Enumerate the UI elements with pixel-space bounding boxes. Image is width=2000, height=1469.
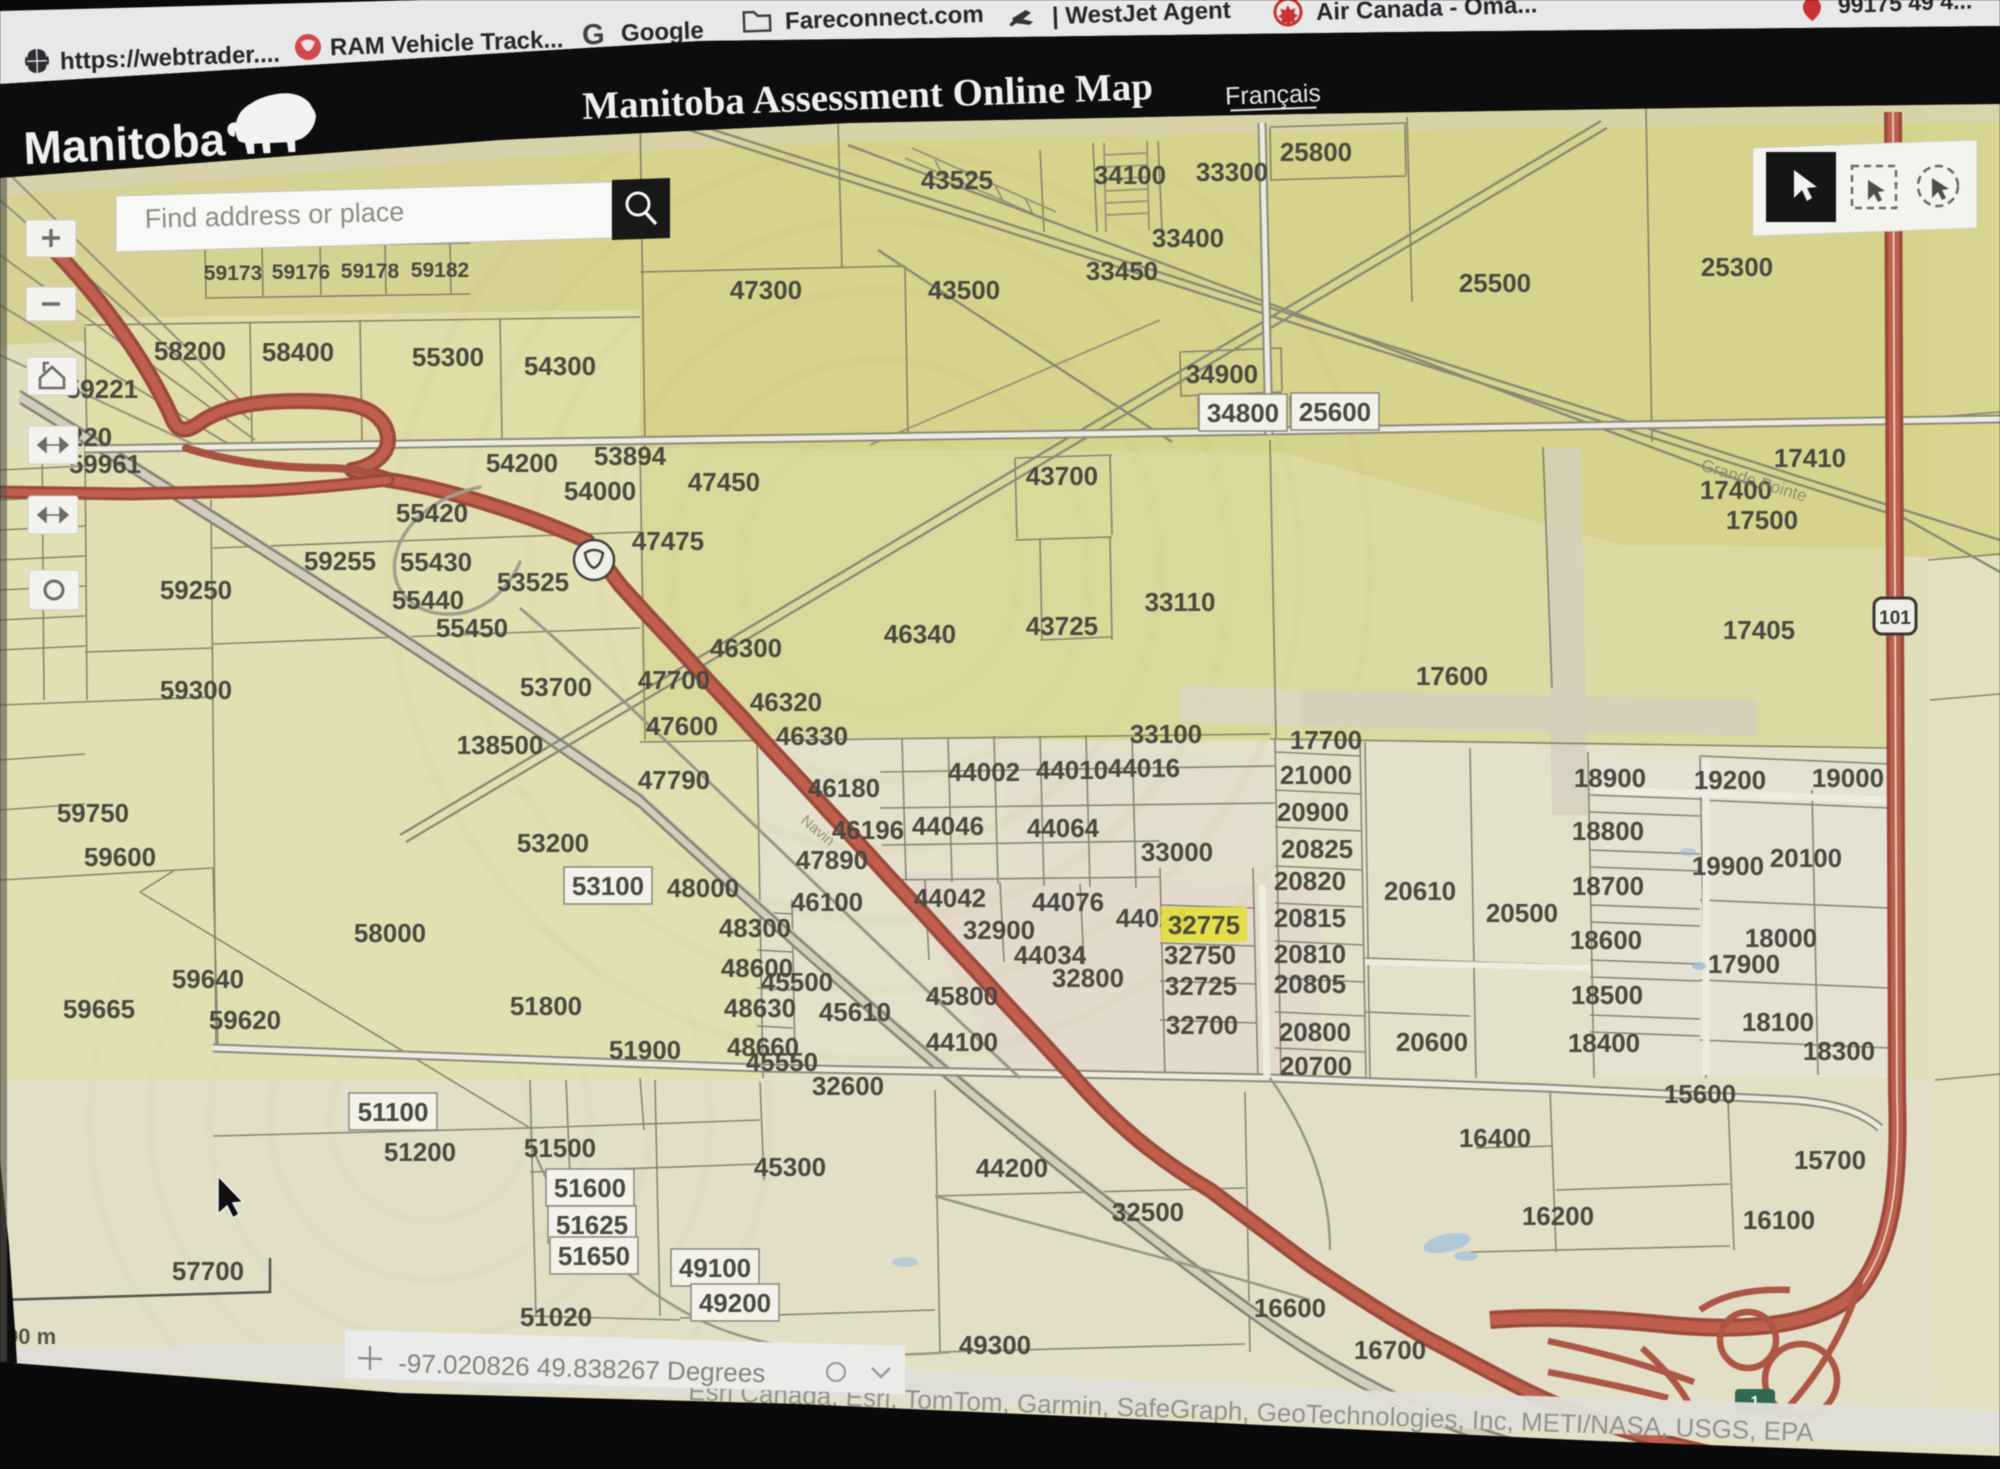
svg-text:59600: 59600 <box>84 842 156 872</box>
svg-text:49300: 49300 <box>959 1330 1031 1360</box>
svg-text:25800: 25800 <box>1280 137 1352 167</box>
svg-text:44016: 44016 <box>1108 753 1180 783</box>
svg-text:20100: 20100 <box>1770 843 1842 873</box>
svg-text:46340: 46340 <box>884 619 956 649</box>
svg-text:43725: 43725 <box>1026 611 1098 641</box>
svg-text:51800: 51800 <box>510 991 582 1021</box>
svg-text:51200: 51200 <box>384 1137 456 1167</box>
svg-text:44100: 44100 <box>926 1027 998 1057</box>
svg-text:59182: 59182 <box>411 259 469 282</box>
svg-text:46100: 46100 <box>791 887 863 917</box>
svg-text:25300: 25300 <box>1701 252 1773 282</box>
svg-text:Manitoba: Manitoba <box>22 113 226 174</box>
svg-text:16200: 16200 <box>1522 1201 1594 1231</box>
svg-text:32750: 32750 <box>1164 940 1236 970</box>
svg-text:54300: 54300 <box>524 351 596 381</box>
svg-text:47700: 47700 <box>638 665 710 695</box>
svg-text:44076: 44076 <box>1032 887 1104 917</box>
svg-text:20825: 20825 <box>1281 834 1353 864</box>
svg-text:20600: 20600 <box>1396 1027 1468 1057</box>
svg-text:18500: 18500 <box>1571 980 1643 1010</box>
svg-text:34100: 34100 <box>1094 160 1166 190</box>
svg-text:55300: 55300 <box>412 342 484 372</box>
svg-text:59173: 59173 <box>204 262 262 285</box>
svg-text:53700: 53700 <box>520 672 592 702</box>
svg-text:53200: 53200 <box>517 828 589 858</box>
svg-text:44046: 44046 <box>912 811 984 841</box>
svg-text:46300: 46300 <box>710 633 782 663</box>
svg-text:18300: 18300 <box>1803 1036 1875 1066</box>
svg-text:32500: 32500 <box>1112 1197 1184 1227</box>
svg-text:55430: 55430 <box>400 547 472 577</box>
svg-text:44064: 44064 <box>1027 813 1100 843</box>
svg-text:32775: 32775 <box>1168 910 1240 940</box>
svg-text:46180: 46180 <box>808 773 880 803</box>
svg-text:17600: 17600 <box>1416 661 1488 691</box>
svg-text:16100: 16100 <box>1743 1205 1815 1235</box>
svg-text:20610: 20610 <box>1384 876 1456 906</box>
svg-text:33450: 33450 <box>1086 256 1158 286</box>
svg-text:33110: 33110 <box>1145 587 1216 617</box>
svg-text:44042: 44042 <box>914 883 986 913</box>
svg-text:Français: Français <box>1225 79 1322 110</box>
svg-text:33100: 33100 <box>1130 719 1202 749</box>
svg-text:18700: 18700 <box>1572 871 1644 901</box>
svg-text:20900: 20900 <box>1277 797 1349 827</box>
svg-text:59665: 59665 <box>63 994 135 1024</box>
svg-text:49200: 49200 <box>699 1288 771 1318</box>
svg-text:17700: 17700 <box>1290 725 1362 755</box>
svg-text:48300: 48300 <box>719 913 791 943</box>
svg-text:32900: 32900 <box>963 915 1035 945</box>
svg-text:51625: 51625 <box>556 1210 628 1240</box>
svg-text:18400: 18400 <box>1568 1028 1640 1058</box>
svg-text:33400: 33400 <box>1152 223 1224 253</box>
svg-text:51650: 51650 <box>558 1241 630 1271</box>
svg-text:19900: 19900 <box>1692 851 1764 881</box>
svg-text:19200: 19200 <box>1694 765 1766 795</box>
svg-text:138500: 138500 <box>457 730 544 760</box>
svg-text:51100: 51100 <box>358 1097 429 1127</box>
svg-text:18800: 18800 <box>1572 816 1644 846</box>
svg-text:59250: 59250 <box>160 575 232 605</box>
svg-text:44200: 44200 <box>976 1153 1048 1183</box>
svg-text:58200: 58200 <box>154 336 226 366</box>
svg-text:43700: 43700 <box>1026 461 1098 491</box>
svg-text:45550: 45550 <box>746 1047 818 1077</box>
svg-text:47890: 47890 <box>796 845 868 875</box>
svg-text:58400: 58400 <box>262 337 334 367</box>
svg-text:21000: 21000 <box>1280 760 1352 790</box>
svg-text:16700: 16700 <box>1354 1335 1426 1365</box>
svg-text:16600: 16600 <box>1254 1293 1326 1323</box>
svg-text:16400: 16400 <box>1459 1123 1531 1153</box>
svg-text:51600: 51600 <box>554 1173 626 1203</box>
svg-text:59750: 59750 <box>57 798 129 828</box>
svg-text:43500: 43500 <box>928 275 1000 305</box>
svg-text:45610: 45610 <box>819 997 891 1027</box>
svg-text:32725: 32725 <box>1165 971 1237 1001</box>
svg-text:47450: 47450 <box>688 467 760 497</box>
svg-text:15700: 15700 <box>1794 1145 1866 1175</box>
svg-text:34800: 34800 <box>1207 398 1279 428</box>
svg-text:54200: 54200 <box>486 448 558 478</box>
svg-text:59300: 59300 <box>160 675 232 705</box>
svg-text:17900: 17900 <box>1708 949 1780 979</box>
svg-text:33300: 33300 <box>1196 157 1268 187</box>
svg-text:51020: 51020 <box>520 1302 592 1332</box>
svg-text:59178: 59178 <box>341 260 400 283</box>
svg-text:18900: 18900 <box>1574 763 1646 793</box>
svg-text:45300: 45300 <box>754 1152 826 1182</box>
svg-text:43525: 43525 <box>921 165 993 195</box>
svg-text:53100: 53100 <box>572 871 644 901</box>
svg-text:G: G <box>582 19 606 52</box>
svg-text:55450: 55450 <box>436 613 508 643</box>
svg-text:58000: 58000 <box>354 918 426 948</box>
svg-text:47790: 47790 <box>638 765 710 795</box>
svg-text:59961: 59961 <box>69 449 141 479</box>
svg-text:20700: 20700 <box>1280 1051 1352 1081</box>
svg-text:17500: 17500 <box>1726 505 1798 535</box>
svg-text:33000: 33000 <box>1141 837 1213 867</box>
svg-text:25500: 25500 <box>1459 268 1531 298</box>
svg-text:20805: 20805 <box>1274 969 1346 999</box>
svg-text:20810: 20810 <box>1274 939 1346 969</box>
svg-text:59640: 59640 <box>172 964 244 994</box>
svg-text:53894: 53894 <box>594 441 667 471</box>
svg-text:45800: 45800 <box>926 981 998 1011</box>
svg-text:59255: 59255 <box>304 546 376 576</box>
svg-text:47475: 47475 <box>632 526 704 556</box>
svg-text:46196: 46196 <box>832 815 904 845</box>
svg-text:54000: 54000 <box>564 476 636 506</box>
svg-text:51500: 51500 <box>524 1133 596 1163</box>
svg-text:15600: 15600 <box>1664 1079 1736 1109</box>
svg-text:47600: 47600 <box>646 711 718 741</box>
svg-text:57700: 57700 <box>172 1256 244 1286</box>
svg-text:20815: 20815 <box>1274 903 1346 933</box>
svg-text:46330: 46330 <box>776 721 848 751</box>
svg-text:20500: 20500 <box>1486 898 1558 928</box>
svg-text:47300: 47300 <box>730 275 802 305</box>
svg-text:55440: 55440 <box>392 585 464 615</box>
svg-text:53525: 53525 <box>497 567 569 597</box>
svg-text:46320: 46320 <box>750 687 822 717</box>
svg-text:44002: 44002 <box>948 757 1020 787</box>
svg-text:32700: 32700 <box>1166 1010 1238 1040</box>
svg-text:20800: 20800 <box>1279 1017 1351 1047</box>
svg-text:32600: 32600 <box>812 1071 884 1101</box>
svg-text:44010: 44010 <box>1036 755 1108 785</box>
svg-text:34900: 34900 <box>1186 359 1258 389</box>
svg-text:48630: 48630 <box>724 993 796 1023</box>
svg-text:19000: 19000 <box>1812 763 1884 793</box>
svg-text:49100: 49100 <box>679 1253 751 1283</box>
svg-text:25600: 25600 <box>1299 397 1371 427</box>
svg-text:20820: 20820 <box>1274 866 1346 896</box>
svg-text:18100: 18100 <box>1742 1007 1814 1037</box>
svg-text:18600: 18600 <box>1570 925 1642 955</box>
svg-text:45500: 45500 <box>761 967 833 997</box>
svg-text:59176: 59176 <box>272 261 330 284</box>
svg-text:32800: 32800 <box>1052 963 1124 993</box>
svg-text:48000: 48000 <box>667 873 739 903</box>
svg-text:17405: 17405 <box>1723 615 1795 645</box>
svg-text:51900: 51900 <box>609 1035 681 1065</box>
svg-text:17410: 17410 <box>1774 443 1846 473</box>
svg-text:101: 101 <box>1879 608 1911 629</box>
svg-text:55420: 55420 <box>396 498 468 528</box>
svg-text:59620: 59620 <box>209 1005 281 1035</box>
